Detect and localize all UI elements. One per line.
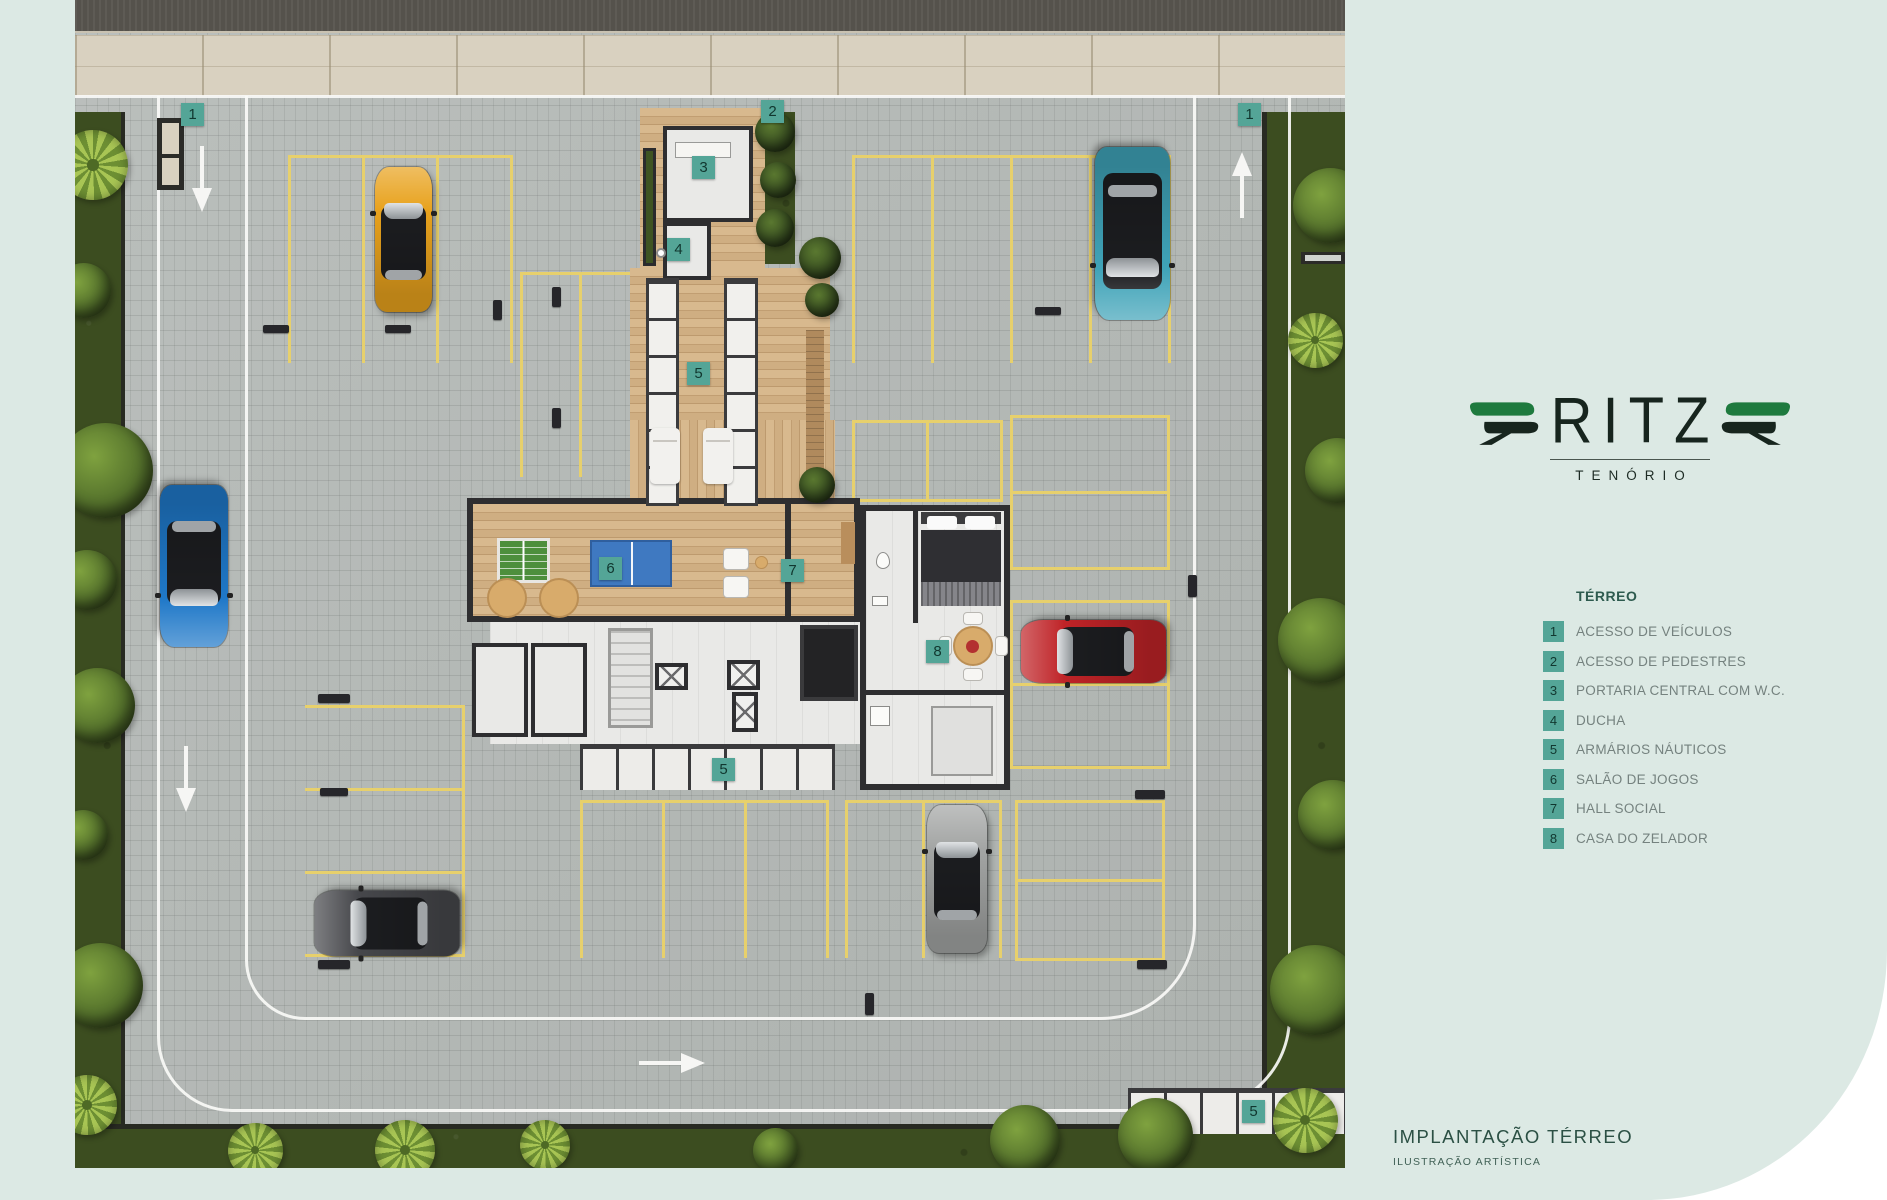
legend: TÉRREO 1ACESSO DE VEÍCULOS 2ACESSO DE PE… <box>1543 588 1873 853</box>
deck-planter <box>643 148 656 266</box>
chair <box>995 636 1008 656</box>
legend-item-2: 2ACESSO DE PEDESTRES <box>1543 647 1873 677</box>
car-blue <box>160 485 228 647</box>
toilet <box>876 552 890 569</box>
legend-item-8: 8CASA DO ZELADOR <box>1543 824 1873 854</box>
plan-marker-5: 5 <box>712 758 735 781</box>
arrow-up-icon <box>1229 150 1255 222</box>
plan-marker-3: 3 <box>692 156 715 179</box>
tree <box>990 1105 1060 1168</box>
wheel-stop <box>1135 790 1165 799</box>
legend-number-badge: 5 <box>1543 739 1564 760</box>
deck-bench <box>806 330 824 478</box>
car-dark-gray <box>315 891 460 957</box>
car-red <box>1021 620 1166 683</box>
tree <box>799 237 841 279</box>
gate-structure <box>1301 252 1345 264</box>
legend-number-badge: 3 <box>1543 680 1564 701</box>
legend-item-5: 5ARMÁRIOS NÁUTICOS <box>1543 735 1873 765</box>
hall-desk <box>841 522 855 564</box>
plan-title: IMPLANTAÇÃO TÉRREO <box>1393 1126 1633 1148</box>
palm-tree <box>1273 1088 1338 1153</box>
plan-marker-1: 1 <box>181 103 204 126</box>
legend-item-label: ACESSO DE VEÍCULOS <box>1576 624 1732 639</box>
legend-number-badge: 6 <box>1543 769 1564 790</box>
legend-item-label: SALÃO DE JOGOS <box>1576 772 1699 787</box>
sidewalk <box>75 35 1345 96</box>
legend-number-badge: 7 <box>1543 798 1564 819</box>
wheel-stop <box>552 287 561 307</box>
plan-marker-1: 1 <box>1238 103 1261 126</box>
arrow-right-icon <box>635 1050 707 1076</box>
plan-marker-7: 7 <box>781 559 804 582</box>
sun-lounger <box>650 428 680 484</box>
legend-item-1: 1ACESSO DE VEÍCULOS <box>1543 617 1873 647</box>
shower-point <box>656 248 666 258</box>
car-teal-suv <box>1095 147 1170 320</box>
plan-caption: IMPLANTAÇÃO TÉRREO ILUSTRAÇÃO ARTÍSTICA <box>1393 1126 1633 1168</box>
locker-row <box>580 744 835 790</box>
side-table <box>755 556 768 569</box>
plan-marker-5: 5 <box>687 362 710 385</box>
tree <box>799 467 835 503</box>
chair <box>963 612 983 625</box>
street <box>75 0 1345 33</box>
pillow <box>927 516 957 529</box>
legend-item-3: 3PORTARIA CENTRAL COM W.C. <box>1543 676 1873 706</box>
sink <box>872 596 888 606</box>
legend-item-label: CASA DO ZELADOR <box>1576 831 1708 846</box>
legend-item-4: 4DUCHA <box>1543 706 1873 736</box>
wheel-stop <box>552 408 561 428</box>
palm-tree <box>520 1120 570 1168</box>
car-silver <box>927 805 987 953</box>
shower-room <box>931 706 993 776</box>
bed-duvet <box>921 530 1001 582</box>
logo-divider <box>1550 459 1710 460</box>
legend-number-badge: 2 <box>1543 651 1564 672</box>
tree <box>756 209 794 247</box>
wheel-stop <box>1188 575 1197 597</box>
armchair <box>723 576 749 598</box>
wheel-stop <box>320 788 348 796</box>
logo-subtitle: TENÓRIO <box>1450 468 1818 483</box>
logo-wordmark: RITZ <box>1551 389 1720 454</box>
wheel-stop <box>263 325 289 333</box>
wheel-stop <box>318 960 350 969</box>
palm-tree <box>1288 313 1343 368</box>
elevator <box>727 660 760 690</box>
storeroom <box>472 643 528 737</box>
tree <box>75 943 143 1028</box>
plan-marker-4: 4 <box>667 238 690 261</box>
tree <box>75 668 135 743</box>
table-setting <box>966 640 979 653</box>
legend-item-label: ARMÁRIOS NÁUTICOS <box>1576 742 1727 757</box>
technical-shaft <box>800 625 858 701</box>
tree <box>75 423 153 518</box>
legend-item-label: DUCHA <box>1576 713 1626 728</box>
tree <box>753 1128 798 1169</box>
washer <box>870 706 890 726</box>
chair <box>963 668 983 681</box>
legend-item-6: 6SALÃO DE JOGOS <box>1543 765 1873 795</box>
stairwell <box>608 628 653 728</box>
game-room-table <box>539 578 579 618</box>
logo-wing-right-icon <box>1717 395 1795 447</box>
plan-marker-5: 5 <box>1242 1100 1265 1123</box>
wheel-stop <box>318 694 350 703</box>
armchair <box>723 548 749 570</box>
car-orange <box>375 167 432 312</box>
site-plan-illustration: 11234555678 <box>75 0 1345 1168</box>
wheel-stop <box>385 325 411 333</box>
tree <box>1118 1098 1193 1169</box>
plan-marker-8: 8 <box>926 640 949 663</box>
plan-subtitle: ILUSTRAÇÃO ARTÍSTICA <box>1393 1156 1633 1168</box>
legend-number-badge: 1 <box>1543 621 1564 642</box>
legend-item-label: ACESSO DE PEDESTRES <box>1576 654 1746 669</box>
arrow-down-icon <box>173 742 199 814</box>
sun-lounger <box>703 428 733 484</box>
arrow-down-icon <box>189 142 215 214</box>
legend-item-label: HALL SOCIAL <box>1576 801 1666 816</box>
wheel-stop <box>1137 960 1167 969</box>
pedestrian-gate <box>157 118 184 190</box>
legend-item-label: PORTARIA CENTRAL COM W.C. <box>1576 683 1785 698</box>
wheel-stop <box>865 993 874 1015</box>
bed-blanket <box>921 582 1001 606</box>
plan-marker-2: 2 <box>761 100 784 123</box>
interior-wall <box>860 690 1010 695</box>
wheel-stop <box>1035 307 1061 315</box>
pillow <box>965 516 995 529</box>
elevator <box>732 692 758 732</box>
plan-marker-6: 6 <box>599 557 622 580</box>
tree <box>805 283 839 317</box>
wheel-stop <box>493 300 502 320</box>
storeroom <box>531 643 587 737</box>
brand-logo: RITZ TENÓRIO <box>1450 392 1810 483</box>
legend-number-badge: 4 <box>1543 710 1564 731</box>
legend-title: TÉRREO <box>1576 588 1873 604</box>
legend-number-badge: 8 <box>1543 828 1564 849</box>
tree <box>760 162 796 198</box>
logo-wing-left-icon <box>1465 395 1543 447</box>
legend-item-7: 7HALL SOCIAL <box>1543 794 1873 824</box>
foosball-table <box>497 538 550 583</box>
interior-wall <box>913 505 918 623</box>
elevator <box>655 663 688 690</box>
game-room-table <box>487 578 527 618</box>
